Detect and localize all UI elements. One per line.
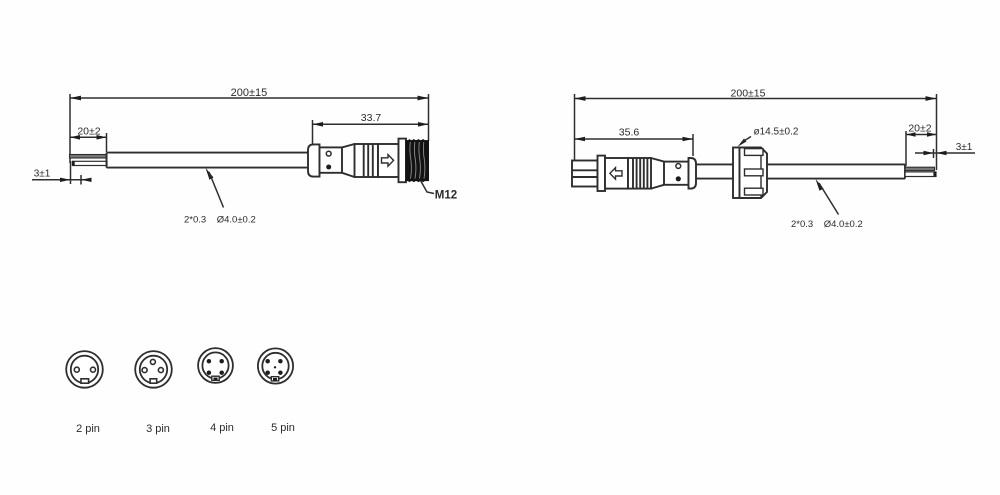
svg-text:M12: M12	[435, 189, 457, 201]
svg-text:3±1: 3±1	[34, 169, 51, 180]
svg-text:35.6: 35.6	[619, 127, 640, 139]
svg-text:200±15: 200±15	[231, 87, 268, 99]
svg-text:33.7: 33.7	[361, 112, 382, 124]
svg-text:2*0.3 Ø4.0±0.2: 2*0.3 Ø4.0±0.2	[791, 219, 863, 230]
svg-text:ø14.5±0.2: ø14.5±0.2	[754, 127, 799, 138]
svg-text:200±15: 200±15	[731, 88, 766, 100]
svg-text:4 pin: 4 pin	[210, 422, 234, 434]
svg-text:20±2: 20±2	[908, 123, 931, 135]
svg-text:3 pin: 3 pin	[146, 423, 170, 435]
svg-text:5 pin: 5 pin	[271, 422, 295, 434]
svg-text:2*0.3 Ø4.0±0.2: 2*0.3 Ø4.0±0.2	[184, 215, 256, 226]
svg-text:2 pin: 2 pin	[76, 423, 100, 435]
svg-text:20±2: 20±2	[77, 126, 100, 138]
svg-text:3±1: 3±1	[956, 142, 973, 153]
